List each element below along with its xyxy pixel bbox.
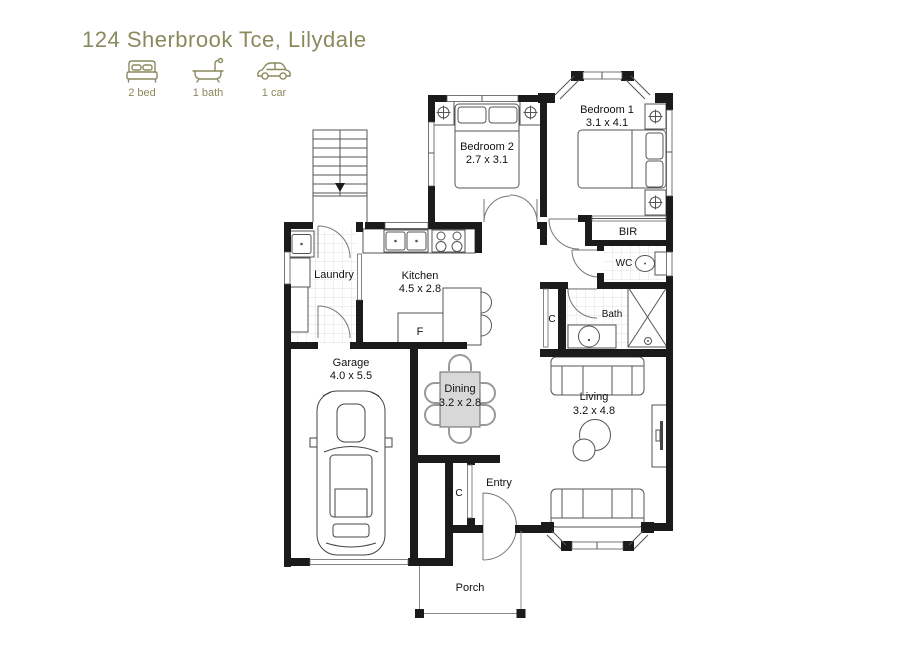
fridge-label: F	[417, 326, 424, 338]
entry-label: Entry	[486, 477, 512, 489]
hall-closet-label: C	[548, 314, 555, 325]
porch-outline	[415, 531, 526, 618]
bedroom2-dims: 2.7 x 3.1	[466, 154, 508, 166]
laundry-label: Laundry	[314, 269, 354, 281]
living-dims: 3.2 x 4.8	[573, 405, 615, 417]
wc-label: WC	[616, 258, 633, 269]
kitchen-island	[398, 288, 492, 345]
garage-door	[310, 560, 408, 565]
entry-closet-label: C	[455, 488, 462, 499]
living-label: Living	[580, 391, 609, 403]
floorplan-page: 124 Sherbrook Tce, Lilydale 2 bed	[0, 0, 918, 650]
bath-label: Bath	[602, 309, 623, 320]
laundry-sink	[289, 231, 314, 257]
kitchen-dims: 4.5 x 2.8	[399, 283, 441, 295]
dining-label: Dining	[444, 383, 475, 395]
garage-dims: 4.0 x 5.5	[330, 370, 372, 382]
sofa-top	[551, 357, 644, 395]
bedroom1-dims: 3.1 x 4.1	[586, 117, 628, 129]
bir-label: BIR	[619, 226, 637, 238]
bedroom1-label: Bedroom 1	[580, 104, 634, 116]
stairs	[313, 130, 367, 222]
car-top-view	[310, 391, 392, 555]
bedroom1-bed	[578, 130, 666, 188]
dining-dims: 3.2 x 2.8	[439, 397, 481, 409]
shower	[628, 287, 667, 347]
bath-vanity	[568, 325, 616, 348]
kitchen-label: Kitchen	[402, 270, 439, 282]
coffee-table	[573, 420, 611, 462]
garage-label: Garage	[333, 357, 370, 369]
floor-plan: Bedroom 2 2.7 x 3.1 Bedroom 1 3.1 x 4.1 …	[0, 0, 918, 650]
tv-unit	[652, 405, 667, 467]
cooktop	[432, 230, 465, 252]
sofa-bottom	[551, 489, 644, 527]
porch-label: Porch	[456, 582, 485, 594]
bedroom2-label: Bedroom 2	[460, 141, 514, 153]
